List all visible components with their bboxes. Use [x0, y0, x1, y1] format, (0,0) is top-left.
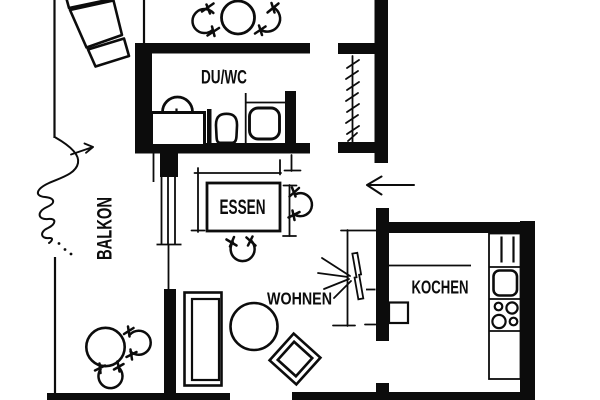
svg-text:BALKON: BALKON: [94, 197, 117, 260]
svg-text:DU/WC: DU/WC: [201, 68, 247, 89]
svg-text:WOHNEN: WOHNEN: [267, 289, 332, 309]
svg-text:ESSEN: ESSEN: [220, 196, 266, 219]
svg-text:KOCHEN: KOCHEN: [412, 277, 469, 298]
